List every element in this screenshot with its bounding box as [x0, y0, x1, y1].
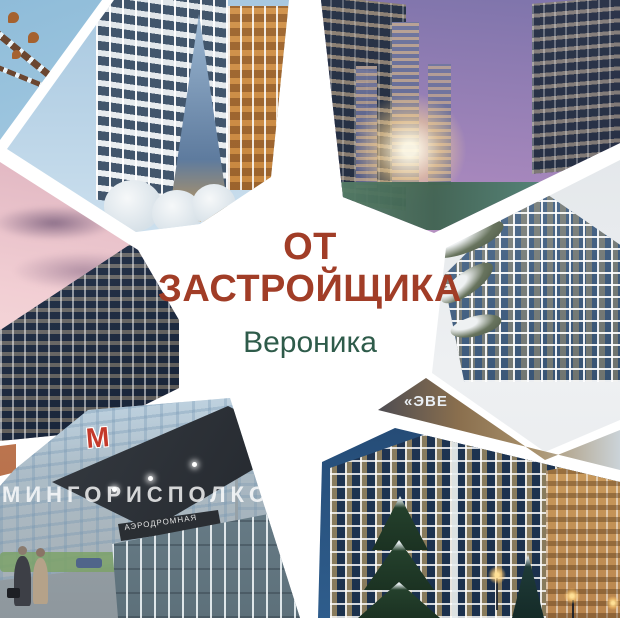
- headline-line1: ОТ: [140, 226, 480, 268]
- briefcase-art: [7, 588, 20, 598]
- frosty-tree-art: [192, 184, 236, 226]
- building-art: [546, 458, 620, 618]
- person-art: [18, 546, 27, 555]
- street-lamp-glow: [488, 566, 506, 584]
- cloud-art: [0, 206, 114, 240]
- center-card: ОТ ЗАСТРОЙЩИКА Вероника: [140, 226, 480, 360]
- person-art: [36, 548, 45, 557]
- person-art: [33, 558, 48, 604]
- watermark-partial-text: «ЭВЕ: [404, 393, 448, 410]
- building-art: [228, 6, 290, 190]
- watermark-text: МИНГОРИСПОЛКОМ: [2, 482, 294, 508]
- person-art: [14, 556, 31, 606]
- headline-line2: ЗАСТРОЙЩИКА: [140, 268, 480, 310]
- building-art: [532, 0, 620, 174]
- street-lamp-glow: [606, 596, 620, 610]
- ceiling-light: [148, 476, 153, 481]
- leaf-art: [8, 12, 19, 23]
- leaf-art: [12, 50, 21, 59]
- promo-collage: «ЭВЕ М АЭРОДРОМНАЯ МИНГОРИСПОЛКОМ: [0, 0, 620, 618]
- building-prow-art: [452, 428, 458, 618]
- project-name: Вероника: [140, 326, 480, 360]
- metro-logo-icon: М: [85, 421, 111, 455]
- headline: ОТ ЗАСТРОЙЩИКА: [140, 226, 480, 310]
- ceiling-light: [192, 462, 197, 467]
- street-lamp-glow: [564, 588, 580, 604]
- car-art: [76, 558, 102, 568]
- leaf-art: [28, 32, 39, 43]
